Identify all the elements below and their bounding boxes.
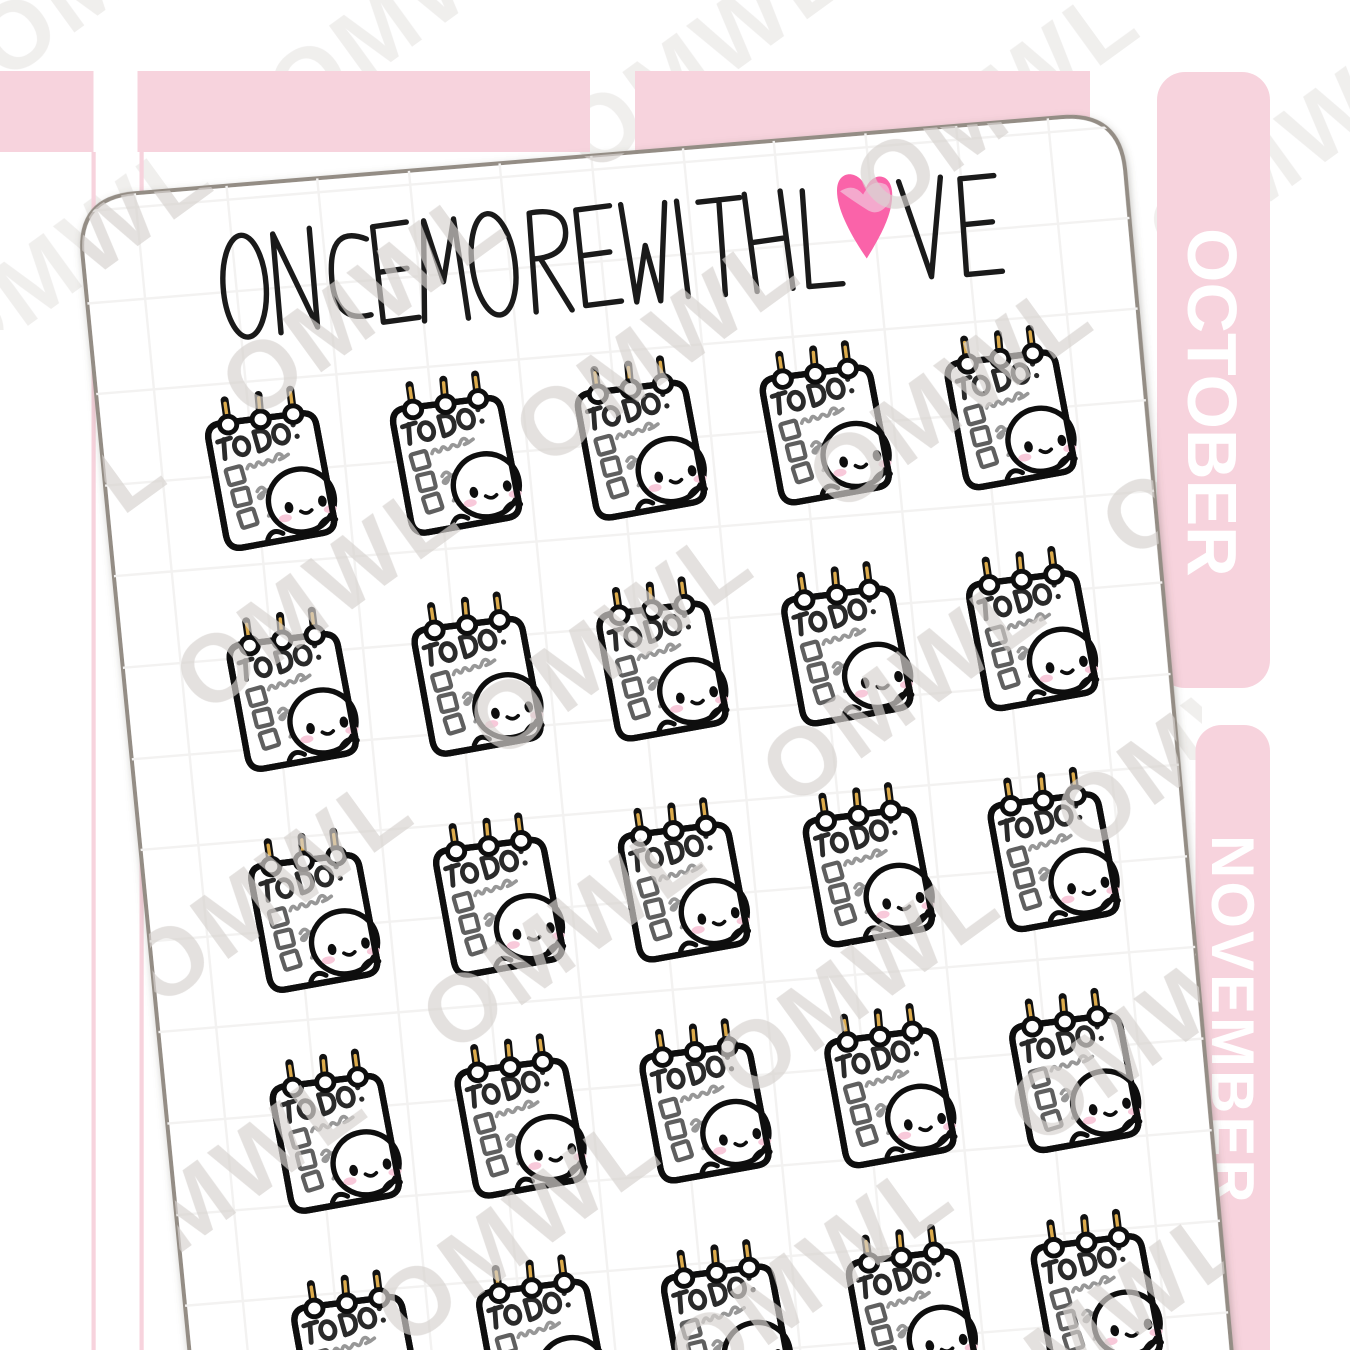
- svg-text:OCTOBER: OCTOBER: [1173, 228, 1251, 577]
